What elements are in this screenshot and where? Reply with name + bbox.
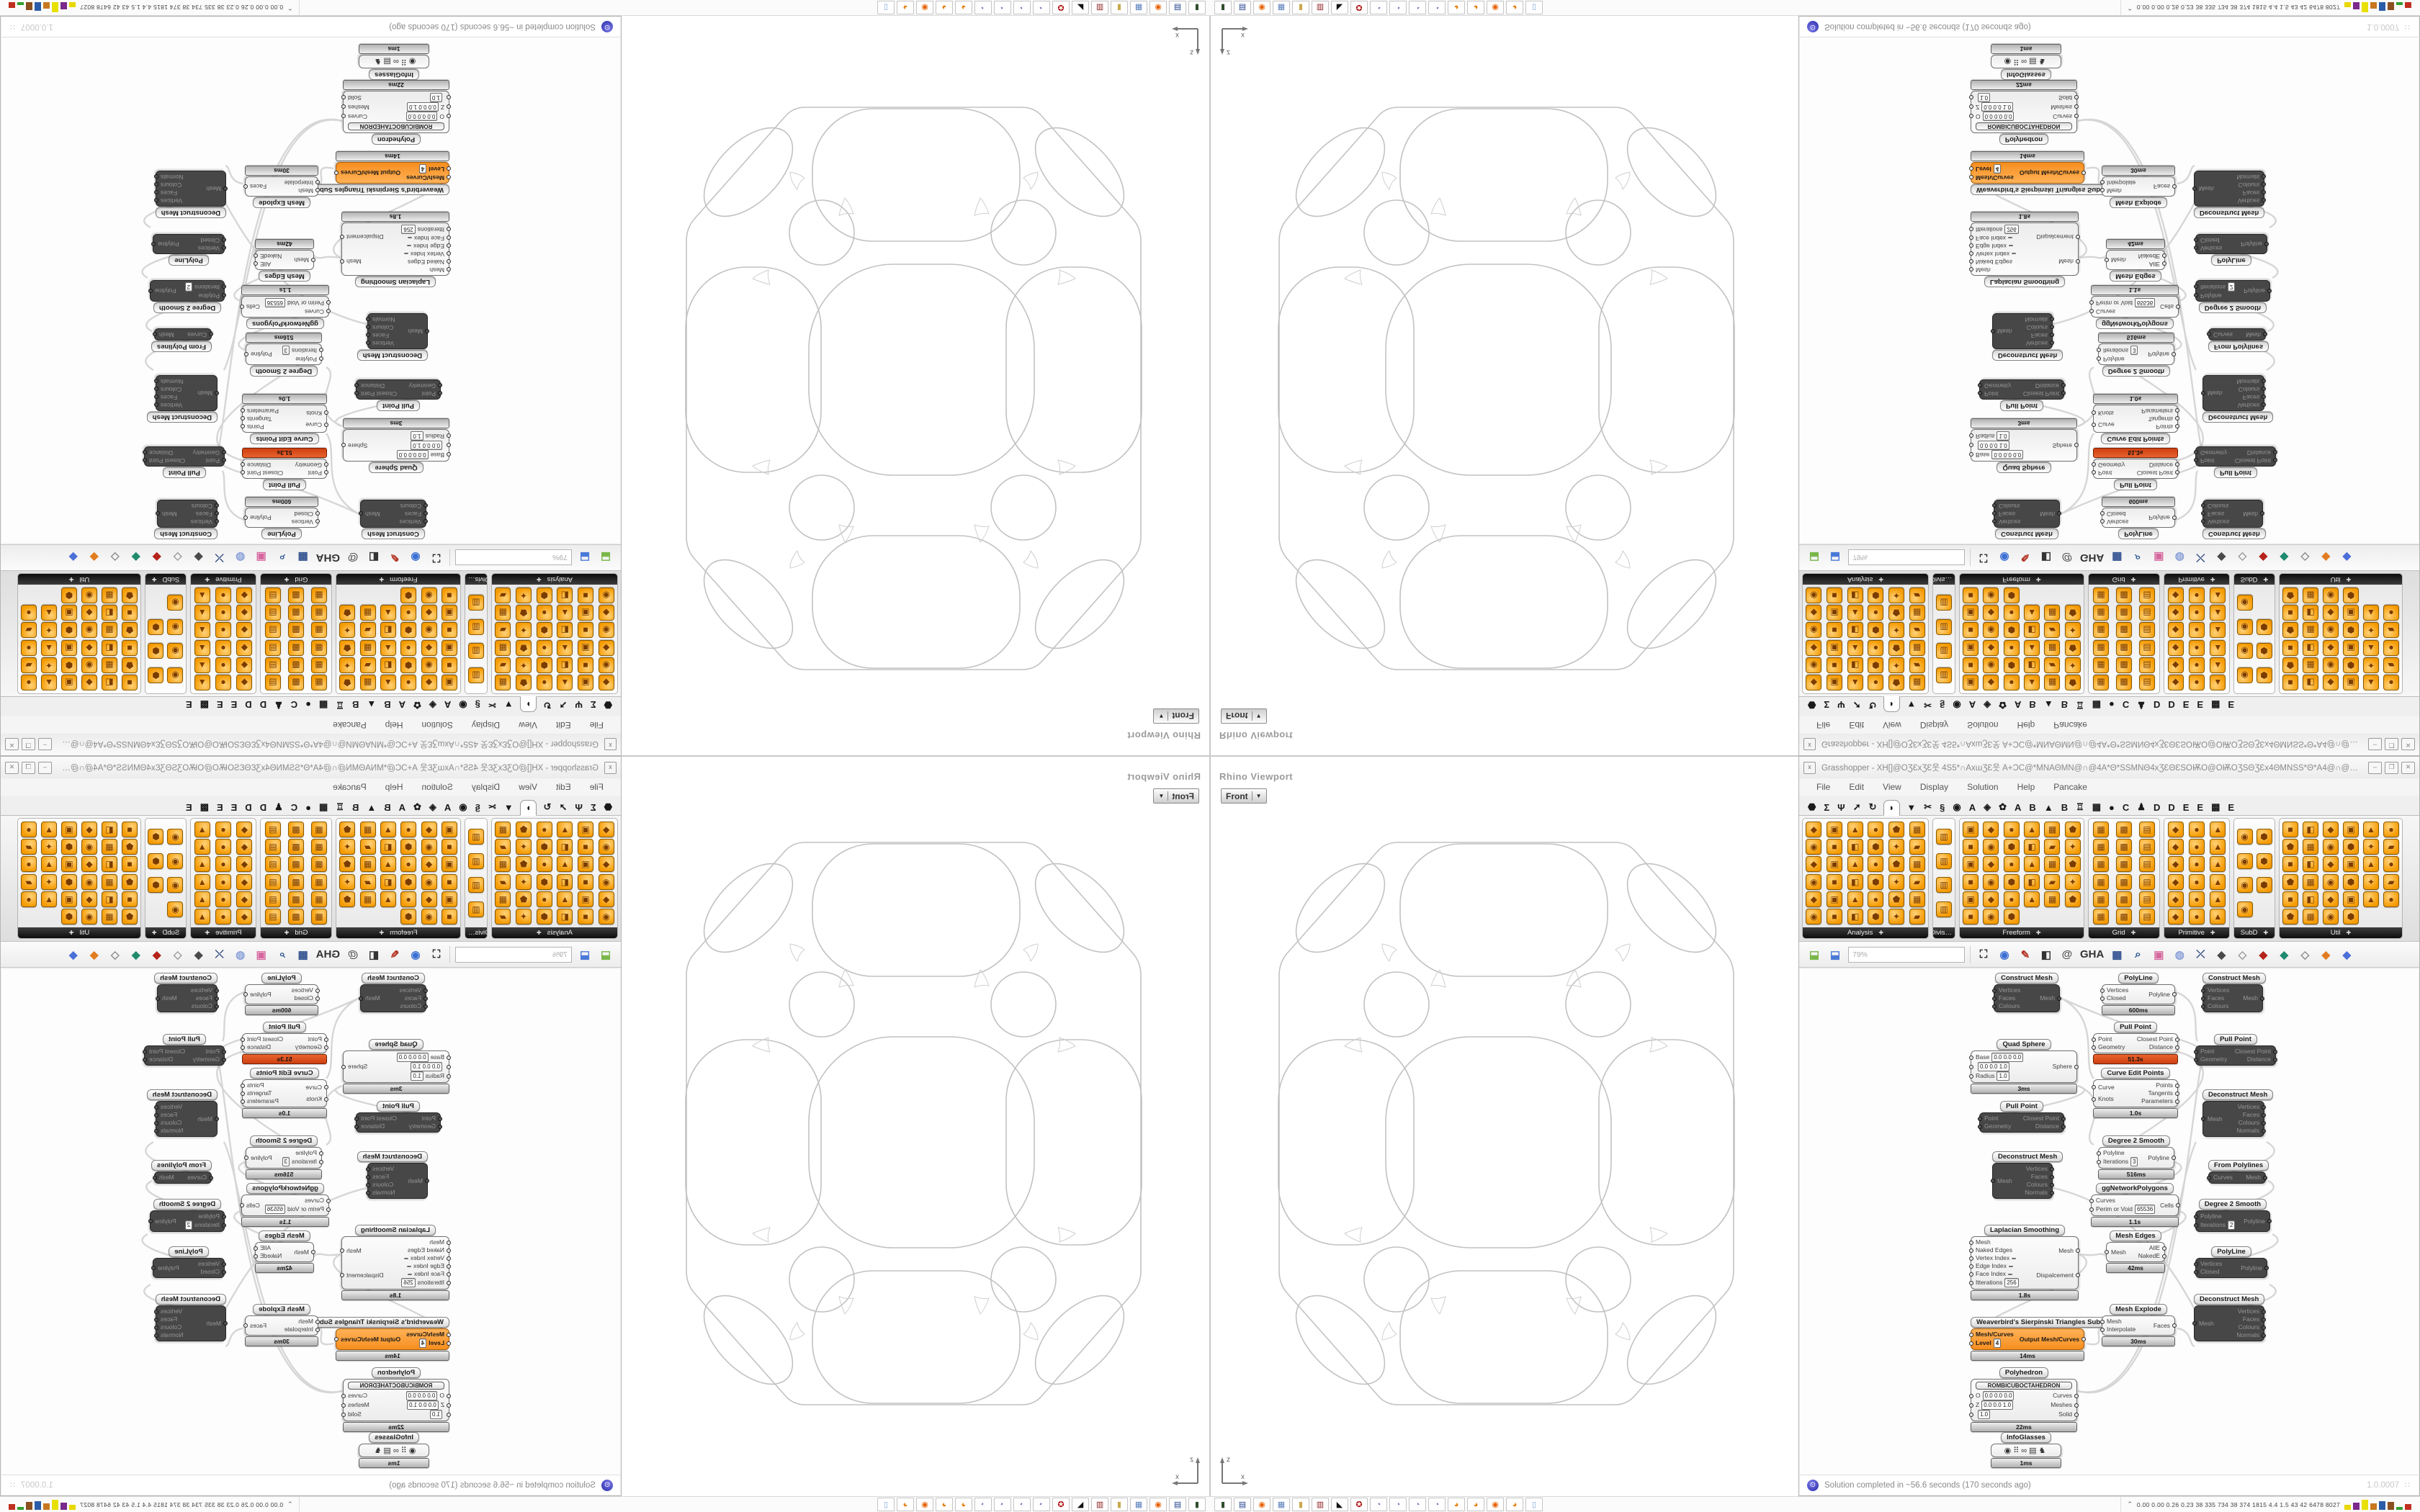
taskbar-app-icon[interactable]: ✪ (1052, 1498, 1070, 1511)
component-tab[interactable]: ↻ (542, 697, 552, 711)
component-icon[interactable]: ● (215, 839, 231, 855)
component-icon[interactable]: ● (2004, 640, 2020, 656)
component-icon[interactable]: ◆ (81, 675, 97, 690)
component-icon[interactable]: ▣ (578, 822, 593, 837)
component-icon[interactable]: ● (537, 822, 552, 837)
toolbar-icon[interactable]: ◆ (2318, 947, 2334, 963)
component-icon[interactable]: ▩ (2116, 891, 2132, 907)
component-icon[interactable]: ▥ (468, 667, 484, 683)
component-icon[interactable]: ▦ (311, 856, 327, 872)
component-icon[interactable]: ▤ (2139, 839, 2155, 855)
component-icon[interactable]: ▦ (102, 622, 117, 638)
component-tab[interactable]: ✿ (412, 801, 423, 815)
toolbar-icon[interactable]: ⛶ (1976, 947, 1991, 963)
component-icon[interactable]: ● (1868, 891, 1883, 907)
component-icon[interactable]: ◆ (236, 822, 252, 837)
component-icon[interactable]: ◧ (2024, 839, 2040, 855)
component-icon[interactable]: ▰ (2383, 874, 2399, 890)
component-icon[interactable]: ◧ (557, 588, 573, 603)
component-icon[interactable]: ▲ (194, 909, 210, 924)
component-icon[interactable]: ◉ (1806, 588, 1821, 603)
component-icon[interactable]: ◆ (81, 891, 97, 907)
component-icon[interactable]: ▤ (265, 640, 281, 656)
taskbar-app-icon[interactable]: ▮ (1292, 1498, 1309, 1511)
taskbar-app-icon[interactable]: ▮ (1188, 1498, 1206, 1511)
component-icon[interactable]: ▦ (2044, 675, 2060, 690)
taskbar-app-icon[interactable]: ◣ (1072, 1498, 1089, 1511)
window-button[interactable]: – (38, 762, 52, 774)
component-icon[interactable]: ● (21, 891, 37, 907)
component-tab[interactable]: ● (2107, 801, 2116, 815)
component-icon[interactable]: ◉ (599, 588, 614, 603)
toolbar-icon[interactable]: ◧ (366, 550, 382, 566)
component-tab[interactable]: C (2121, 801, 2130, 815)
taskbar-app-icon[interactable]: ◕ (1467, 1498, 1484, 1511)
component-icon[interactable]: ■ (122, 605, 138, 621)
component-icon[interactable]: ▩ (288, 588, 304, 603)
toolbar-icon[interactable]: ✎ (387, 550, 403, 566)
component-icon[interactable]: ▲ (194, 588, 210, 603)
component-icon[interactable]: ▦ (2303, 622, 2318, 638)
collapse-arrow-icon[interactable]: ⌃ (2127, 4, 2133, 12)
component-icon[interactable]: ▣ (2343, 891, 2359, 907)
component-icon[interactable]: ⬢ (148, 853, 164, 869)
component-icon[interactable]: ▣ (1827, 822, 1842, 837)
toolbar-icon[interactable]: ◆ (2255, 947, 2271, 963)
component-icon[interactable]: ▲ (1847, 891, 1863, 907)
component-icon[interactable]: ✦ (1888, 909, 1904, 924)
component-icon[interactable]: ■ (578, 657, 593, 673)
component-icon[interactable]: ▦ (2303, 909, 2318, 924)
component-icon[interactable]: ▥ (468, 853, 484, 869)
component-icon[interactable]: ▦ (360, 675, 376, 690)
component-icon[interactable]: ▦ (2044, 640, 2060, 656)
component-icon[interactable]: ▦ (102, 874, 117, 890)
component-icon[interactable]: ▰ (2383, 622, 2399, 638)
window-button[interactable]: – (2368, 739, 2382, 751)
ribbon-panel-label[interactable]: Freeform ✚ (336, 574, 460, 585)
menu-item[interactable]: Edit (1849, 720, 1864, 730)
toolbar-icon[interactable]: ◉ (1996, 947, 2012, 963)
taskbar-app-icon[interactable]: ◔ (1389, 1, 1407, 14)
component-icon[interactable]: ◉ (2237, 595, 2253, 611)
component-icon[interactable]: ⬢ (2257, 619, 2272, 635)
component-icon[interactable]: ▰ (360, 622, 376, 638)
component-icon[interactable]: ✦ (2065, 874, 2081, 890)
collapse-arrow-icon[interactable]: ⌃ (287, 4, 293, 12)
taskbar-app-icon[interactable]: ◔ (1370, 1, 1387, 14)
component-icon[interactable]: ◆ (2323, 675, 2339, 690)
component-tab[interactable]: B (351, 801, 360, 815)
component-tab[interactable]: ↻ (1868, 697, 1878, 711)
toolbar-icon[interactable]: ⌕ (274, 550, 290, 566)
component-icon[interactable]: ▤ (265, 822, 281, 837)
component-icon[interactable]: ◆ (2168, 640, 2184, 656)
component-icon[interactable]: ⬢ (400, 909, 416, 924)
taskbar-app-icon[interactable]: ◣ (1331, 1498, 1348, 1511)
component-tab[interactable]: ◈ (428, 801, 438, 815)
taskbar-app-icon[interactable]: ▦ (1130, 1498, 1147, 1511)
toolbar-icon[interactable]: ◆ (191, 550, 207, 566)
toolbar-icon[interactable]: ✎ (2017, 947, 2033, 963)
toolbar-icon[interactable]: @ (2059, 947, 2075, 963)
toolbar-icon[interactable]: ◇ (2297, 550, 2313, 566)
taskbar-app-icon[interactable]: ◕ (1506, 1, 1523, 14)
component-icon[interactable]: ⬢ (400, 839, 416, 855)
taskbar-app-icon[interactable]: ◔ (994, 1498, 1011, 1511)
component-icon[interactable]: ✦ (41, 874, 57, 890)
component-icon[interactable]: ▩ (288, 640, 304, 656)
component-icon[interactable]: ▥ (1936, 667, 1952, 683)
toolbar-icon[interactable]: @ (2059, 550, 2075, 566)
component-tab[interactable]: Σ (1822, 697, 1831, 711)
component-icon[interactable]: ■ (442, 839, 457, 855)
component-icon[interactable]: ◆ (2323, 856, 2339, 872)
component-icon[interactable]: ▥ (468, 877, 484, 893)
component-icon[interactable]: ◆ (236, 588, 252, 603)
component-icon[interactable]: ▣ (578, 675, 593, 690)
component-icon[interactable]: ✦ (339, 657, 355, 673)
component-tab[interactable]: ✿ (1997, 697, 2008, 711)
component-icon[interactable]: ▲ (2210, 622, 2226, 638)
component-icon[interactable]: ■ (1963, 909, 1978, 924)
taskbar-app-icon[interactable]: ▥ (1091, 1, 1108, 14)
component-icon[interactable]: ● (537, 675, 552, 690)
component-icon[interactable]: ▰ (1909, 909, 1925, 924)
toolbar-icon[interactable]: GHA (2080, 947, 2104, 963)
gh-canvas[interactable] (1, 37, 620, 543)
component-tab[interactable]: ➚ (1852, 801, 1863, 815)
component-icon[interactable]: ▦ (360, 605, 376, 621)
component-tab[interactable]: D (259, 697, 268, 711)
component-icon[interactable]: ▲ (2210, 822, 2226, 837)
component-icon[interactable]: ⬢ (2257, 643, 2272, 659)
taskbar-app-icon[interactable]: ▮ (1214, 1, 1232, 14)
component-icon[interactable]: ▣ (2343, 675, 2359, 690)
component-tab[interactable]: B (382, 697, 392, 711)
component-icon[interactable]: ▩ (2116, 874, 2132, 890)
toolbar-icon[interactable]: ◍ (233, 550, 248, 566)
component-icon[interactable]: ⬢ (61, 839, 77, 855)
component-icon[interactable]: ■ (122, 891, 138, 907)
component-tab[interactable]: A (1968, 697, 1977, 711)
component-icon[interactable]: ⬢ (2004, 874, 2020, 890)
component-icon[interactable]: ✦ (339, 874, 355, 890)
component-icon[interactable]: ◧ (380, 874, 396, 890)
taskbar-app-icon[interactable]: ◔ (1428, 1498, 1446, 1511)
component-icon[interactable]: ▰ (495, 657, 511, 673)
component-icon[interactable]: ◧ (380, 622, 396, 638)
component-icon[interactable]: ◆ (1983, 891, 1999, 907)
component-icon[interactable]: ⬢ (400, 588, 416, 603)
component-icon[interactable]: ▥ (468, 619, 484, 635)
taskbar-app-icon[interactable]: ▥ (1091, 1498, 1108, 1511)
toolbar-icon[interactable]: GHA (2080, 550, 2104, 566)
component-tab[interactable]: ◗ (1883, 696, 1901, 712)
toolbar-icon[interactable]: ◆ (2339, 947, 2354, 963)
menu-item[interactable]: Solution (1967, 782, 1998, 792)
window-button[interactable]: ✕ (2401, 739, 2415, 751)
component-icon[interactable]: ▤ (2139, 675, 2155, 690)
taskbar-app-icon[interactable]: ▦ (1273, 1, 1290, 14)
component-icon[interactable]: ▲ (2210, 640, 2226, 656)
component-tab[interactable]: ▼ (503, 697, 515, 711)
component-icon[interactable]: ⬢ (148, 829, 164, 845)
component-icon[interactable]: ◆ (81, 605, 97, 621)
panel-close-icon[interactable]: x (604, 739, 617, 751)
component-tab[interactable]: A (1968, 801, 1977, 815)
toolbar-file-icon[interactable]: ⬓ (1827, 947, 1843, 963)
component-icon[interactable]: ✦ (516, 657, 532, 673)
component-icon[interactable]: ▦ (102, 657, 117, 673)
component-icon[interactable]: ▲ (41, 856, 57, 872)
component-icon[interactable]: ▤ (265, 657, 281, 673)
toolbar-icon[interactable]: ◍ (233, 947, 248, 963)
component-icon[interactable]: ⬢ (148, 877, 164, 893)
taskbar-app-icon[interactable]: ▮ (1292, 1, 1309, 14)
component-icon[interactable]: ▣ (442, 605, 457, 621)
component-icon[interactable]: ⬢ (2343, 874, 2359, 890)
component-tab[interactable]: ✿ (412, 697, 423, 711)
ribbon-panel-label[interactable]: Analysis ✚ (1803, 574, 1928, 585)
ribbon-panel-label[interactable]: Analysis ✚ (492, 927, 617, 938)
component-icon[interactable]: ✦ (41, 657, 57, 673)
component-icon[interactable]: ◉ (1806, 622, 1821, 638)
menu-item[interactable]: Pancake (333, 720, 367, 730)
component-icon[interactable]: ▲ (557, 856, 573, 872)
component-icon[interactable]: ▲ (2024, 822, 2040, 837)
menu-item[interactable]: Display (1920, 720, 1948, 730)
component-icon[interactable]: ◉ (168, 901, 184, 917)
component-tab[interactable]: Ψ (573, 697, 584, 711)
component-icon[interactable]: ◆ (236, 605, 252, 621)
taskbar-app-icon[interactable]: ◉ (1253, 1498, 1270, 1511)
component-tab[interactable]: ✂ (487, 801, 498, 815)
component-icon[interactable]: ▲ (41, 640, 57, 656)
component-tab[interactable]: ♖ (334, 697, 346, 711)
toolbar-icon[interactable]: GHA (316, 947, 340, 963)
component-icon[interactable]: ▰ (495, 588, 511, 603)
toolbar-icon[interactable]: ◇ (2234, 947, 2250, 963)
component-icon[interactable]: ◉ (2237, 877, 2253, 893)
component-icon[interactable]: ⬟ (122, 909, 138, 924)
component-icon[interactable]: ▲ (2024, 640, 2040, 656)
menu-item[interactable]: Edit (556, 720, 571, 730)
component-icon[interactable]: ▩ (288, 909, 304, 924)
component-icon[interactable]: ▰ (495, 909, 511, 924)
component-icon[interactable]: ● (21, 822, 37, 837)
component-icon[interactable]: ⬟ (2065, 640, 2081, 656)
component-icon[interactable]: ⬢ (2004, 588, 2020, 603)
component-icon[interactable]: ▲ (2363, 640, 2379, 656)
component-icon[interactable]: ■ (1963, 588, 1978, 603)
component-tab[interactable]: ⬣ (603, 801, 614, 815)
toolbar-icon[interactable]: ◍ (2172, 550, 2187, 566)
component-icon[interactable]: ⬢ (400, 622, 416, 638)
component-tab[interactable]: B (2027, 697, 2037, 711)
component-icon[interactable]: ◉ (2323, 874, 2339, 890)
component-tab[interactable]: E (230, 697, 239, 711)
ribbon-panel-label[interactable]: Freeform ✚ (336, 927, 460, 938)
component-icon[interactable]: ▰ (21, 622, 37, 638)
component-icon[interactable]: ⬟ (516, 640, 532, 656)
component-icon[interactable]: ◧ (1847, 622, 1863, 638)
component-icon[interactable]: ▩ (2116, 839, 2132, 855)
component-tab[interactable]: A (443, 697, 452, 711)
component-tab[interactable]: ♖ (334, 801, 346, 815)
component-tab[interactable]: ▩ (199, 801, 210, 815)
component-icon[interactable]: ◆ (1806, 605, 1821, 621)
component-icon[interactable]: ⬟ (516, 675, 532, 690)
ribbon-panel-label[interactable]: Grid ✚ (261, 574, 331, 585)
component-icon[interactable]: ● (2004, 822, 2020, 837)
menu-item[interactable]: File (1816, 720, 1830, 730)
component-icon[interactable]: ◆ (421, 675, 437, 690)
component-tab[interactable]: B (351, 697, 360, 711)
component-tab[interactable]: A (2013, 801, 2022, 815)
component-tab[interactable]: ▲ (365, 801, 377, 815)
taskbar-app-icon[interactable]: ◉ (1487, 1, 1504, 14)
component-tab[interactable]: ● (304, 697, 313, 711)
component-tab[interactable]: ◈ (1982, 801, 1992, 815)
component-icon[interactable]: ⬟ (2065, 605, 2081, 621)
component-icon[interactable]: ■ (442, 874, 457, 890)
component-icon[interactable]: ▦ (360, 856, 376, 872)
component-icon[interactable]: ◧ (557, 657, 573, 673)
toolbar-file-icon[interactable]: ⬓ (598, 550, 614, 566)
component-icon[interactable]: ◆ (2168, 839, 2184, 855)
component-icon[interactable]: ⬢ (61, 588, 77, 603)
component-icon[interactable]: ⬟ (122, 657, 138, 673)
taskbar-app-icon[interactable]: ◔ (1370, 1498, 1387, 1511)
component-icon[interactable]: ⬟ (1888, 891, 1904, 907)
component-icon[interactable]: ◆ (2168, 657, 2184, 673)
component-icon[interactable]: ▩ (2116, 640, 2132, 656)
component-icon[interactable]: ◧ (557, 839, 573, 855)
component-icon[interactable]: ▰ (2383, 657, 2399, 673)
component-icon[interactable]: ◆ (236, 839, 252, 855)
component-icon[interactable]: ✦ (339, 622, 355, 638)
component-icon[interactable]: ▣ (1827, 640, 1842, 656)
component-icon[interactable]: ⬟ (339, 822, 355, 837)
component-icon[interactable]: ▥ (1936, 595, 1952, 611)
component-icon[interactable]: ▤ (265, 675, 281, 690)
window-button[interactable]: ❐ (2385, 739, 2398, 751)
component-icon[interactable]: ● (400, 856, 416, 872)
component-icon[interactable]: ■ (1963, 657, 1978, 673)
component-icon[interactable]: ⬢ (2004, 657, 2020, 673)
taskbar-app-icon[interactable]: ◕ (897, 1498, 914, 1511)
component-icon[interactable]: ▦ (311, 874, 327, 890)
taskbar-app-icon[interactable]: ▮ (1111, 1, 1128, 14)
component-icon[interactable]: ▦ (1909, 822, 1925, 837)
component-tab[interactable]: Σ (589, 801, 598, 815)
component-icon[interactable]: ▲ (1847, 675, 1863, 690)
component-icon[interactable]: ● (2189, 839, 2205, 855)
component-icon[interactable]: ◉ (2237, 901, 2253, 917)
component-icon[interactable]: ▰ (360, 874, 376, 890)
component-icon[interactable]: ⬢ (2257, 853, 2272, 869)
component-tab[interactable]: ➚ (557, 801, 568, 815)
viewport-projection-dropdown[interactable]: Front ▼ (1221, 788, 1267, 804)
component-icon[interactable]: ▣ (1963, 891, 1978, 907)
component-icon[interactable]: ■ (122, 856, 138, 872)
component-icon[interactable]: ◉ (599, 874, 614, 890)
component-icon[interactable]: ▲ (2363, 822, 2379, 837)
component-tab[interactable]: ♖ (2074, 697, 2086, 711)
taskbar-app-icon[interactable]: ◕ (1448, 1498, 1465, 1511)
component-icon[interactable]: ◉ (421, 588, 437, 603)
component-icon[interactable]: ✦ (1888, 874, 1904, 890)
component-icon[interactable]: ◧ (102, 605, 117, 621)
component-icon[interactable]: ◆ (1806, 822, 1821, 837)
component-icon[interactable]: ▰ (360, 839, 376, 855)
ribbon-panel-label[interactable]: SubD ✚ (145, 574, 186, 585)
component-icon[interactable]: ⬟ (516, 605, 532, 621)
component-icon[interactable]: ◉ (1806, 657, 1821, 673)
component-icon[interactable]: ◉ (81, 909, 97, 924)
component-icon[interactable]: ◉ (599, 657, 614, 673)
component-icon[interactable]: ▲ (557, 891, 573, 907)
component-icon[interactable]: ▲ (2210, 675, 2226, 690)
component-icon[interactable]: ⬢ (400, 657, 416, 673)
component-icon[interactable]: ⬢ (2004, 909, 2020, 924)
toolbar-icon[interactable]: ⛶ (429, 947, 444, 963)
component-icon[interactable]: ⬢ (148, 643, 164, 659)
component-icon[interactable]: ✦ (2363, 657, 2379, 673)
taskbar-app-icon[interactable]: ◉ (1149, 1498, 1167, 1511)
menu-item[interactable]: View (1883, 782, 1901, 792)
component-icon[interactable]: ▦ (495, 822, 511, 837)
component-tab[interactable]: C (290, 801, 299, 815)
component-icon[interactable]: ▲ (194, 822, 210, 837)
component-icon[interactable]: ⬢ (2004, 622, 2020, 638)
component-icon[interactable]: ■ (122, 640, 138, 656)
component-icon[interactable]: ◆ (421, 822, 437, 837)
toolbar-icon[interactable]: @ (345, 947, 361, 963)
component-icon[interactable]: ⬢ (2343, 909, 2359, 924)
component-icon[interactable]: ◆ (1806, 675, 1821, 690)
component-icon[interactable]: ✦ (1888, 622, 1904, 638)
menu-item[interactable]: Pancake (2053, 720, 2087, 730)
component-icon[interactable]: ▣ (1963, 822, 1978, 837)
component-icon[interactable]: ✦ (2363, 839, 2379, 855)
component-icon[interactable]: ⬟ (2282, 588, 2298, 603)
ribbon-panel-label[interactable]: Util ✚ (2280, 574, 2402, 585)
component-icon[interactable]: ⬟ (516, 891, 532, 907)
menu-item[interactable]: View (519, 720, 537, 730)
component-tab[interactable]: ▼ (1905, 801, 1917, 815)
component-tab[interactable]: E (2182, 697, 2191, 711)
component-icon[interactable]: ● (215, 657, 231, 673)
component-icon[interactable]: ◉ (1983, 839, 1999, 855)
component-icon[interactable]: ▲ (2210, 874, 2226, 890)
component-icon[interactable]: ■ (2282, 675, 2298, 690)
component-icon[interactable]: ▦ (102, 839, 117, 855)
taskbar-app-icon[interactable]: ◔ (994, 1, 1011, 14)
component-tab[interactable]: C (2121, 697, 2130, 711)
menu-item[interactable]: View (519, 782, 537, 792)
panel-close-icon[interactable]: x (1803, 762, 1816, 774)
component-icon[interactable]: ● (2004, 605, 2020, 621)
taskbar-app-icon[interactable]: ▤ (1234, 1, 1251, 14)
component-icon[interactable]: ⬢ (537, 657, 552, 673)
component-icon[interactable]: ● (400, 640, 416, 656)
component-icon[interactable]: ● (2189, 675, 2205, 690)
component-icon[interactable]: ⬟ (2282, 839, 2298, 855)
component-icon[interactable]: ▤ (2139, 622, 2155, 638)
component-icon[interactable]: ◉ (421, 839, 437, 855)
